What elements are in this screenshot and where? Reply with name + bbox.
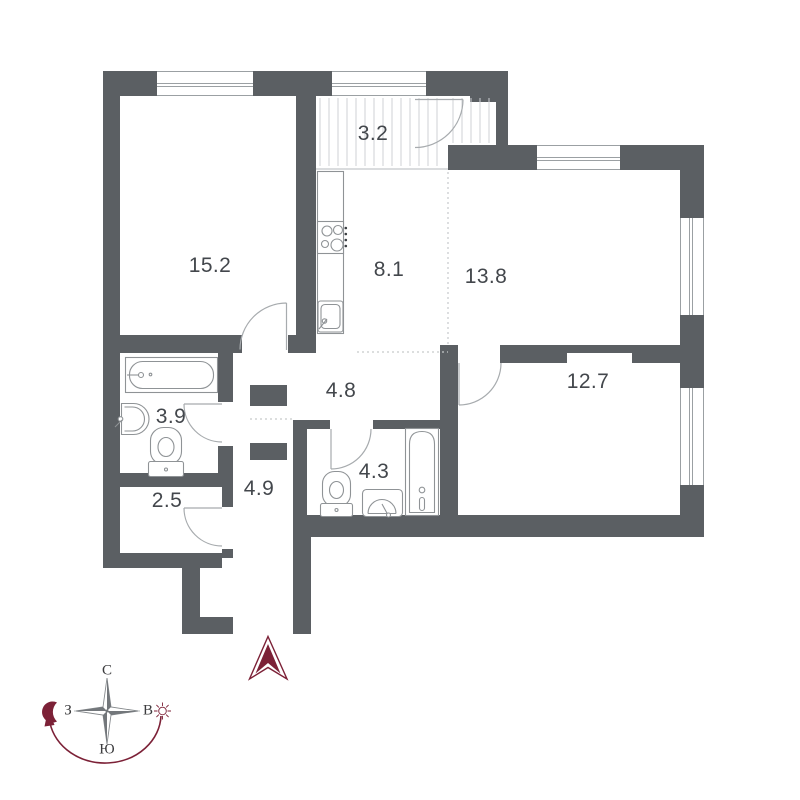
room-label-kitchen: 8.1 — [374, 258, 404, 282]
room-label-bathroom-right: 4.3 — [359, 460, 389, 484]
stove-icon — [318, 222, 348, 254]
loggia-hatch-lines — [320, 98, 489, 166]
room-label-bedroom-right: 12.7 — [567, 370, 609, 394]
kitchen-counter — [318, 172, 348, 334]
room-label-loggia: 3.2 — [358, 122, 388, 146]
wall-sink-icon — [115, 404, 149, 435]
kitchen-sink-icon — [318, 301, 343, 332]
room-label-corridor: 4.9 — [244, 477, 274, 501]
compass-north-label: С — [102, 663, 112, 680]
bathtub-icon — [406, 429, 439, 516]
window — [681, 388, 704, 485]
window — [681, 218, 704, 315]
compass-east-label: В — [143, 703, 153, 720]
room-label-bedroom-top: 13.8 — [465, 265, 507, 289]
room-label-storage: 2.5 — [152, 489, 182, 513]
entrance-arrow-icon — [250, 637, 288, 680]
floor-plan: 15.2 3.2 8.1 13.8 12.7 4.8 3.9 4.9 2.5 4… — [0, 0, 800, 800]
bathtub-icon — [126, 358, 218, 393]
window — [537, 146, 620, 170]
room-label-hall: 4.8 — [326, 379, 356, 403]
sink-icon — [363, 490, 403, 518]
compass-west-label: З — [64, 703, 72, 720]
plan-linework — [0, 0, 800, 800]
room-label-bathroom-left: 3.9 — [156, 405, 186, 429]
toilet-icon — [321, 472, 353, 517]
window — [332, 72, 426, 96]
window — [157, 72, 253, 96]
room-label-living-room: 15.2 — [189, 254, 231, 278]
sun-icon — [154, 703, 171, 720]
toilet-icon — [149, 428, 184, 477]
compass-south-label: Ю — [99, 742, 114, 759]
